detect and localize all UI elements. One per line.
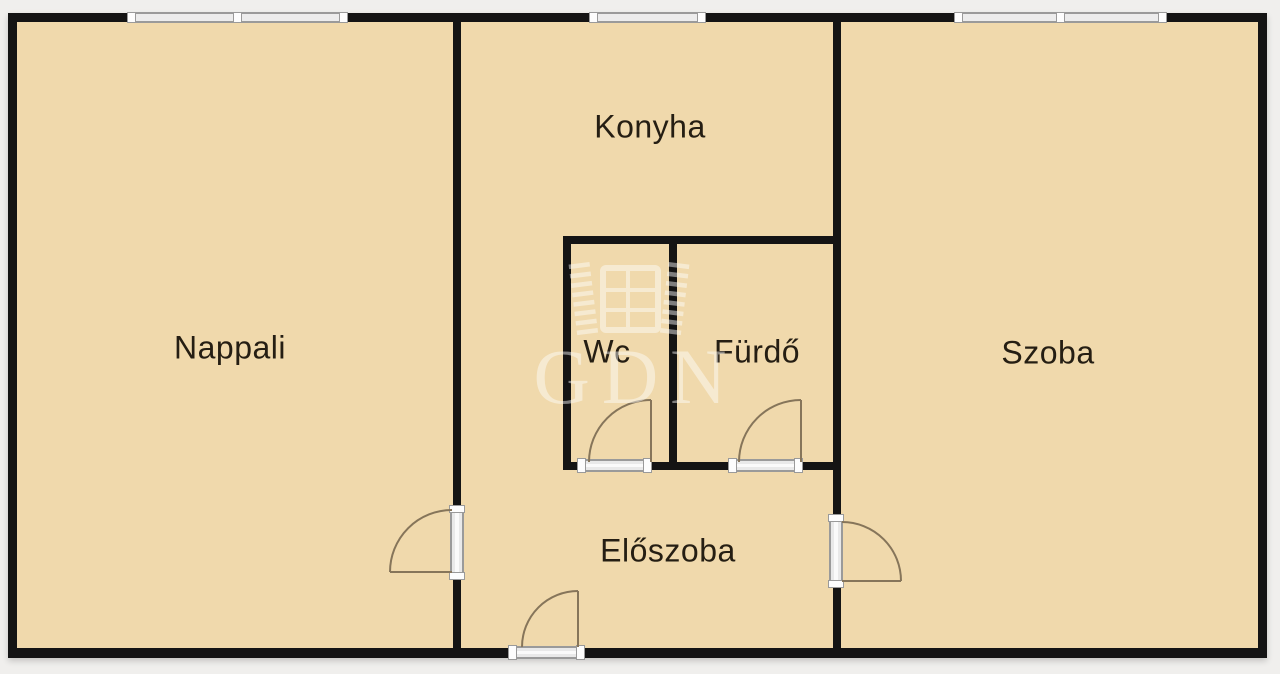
szoba-window-icon: [955, 12, 1166, 23]
door-jamb: [508, 645, 517, 660]
room-label-konyha: Konyha: [594, 109, 706, 146]
door-jamb: [449, 505, 465, 513]
wall-wc-left: [563, 236, 571, 470]
window-mullion: [127, 12, 136, 23]
window-mullion: [339, 12, 348, 23]
szoba-door-opening: [829, 514, 843, 588]
door-jamb: [794, 458, 803, 473]
floor-plan: Nappali Konyha Wc Fürdő Szoba Előszoba: [0, 0, 1280, 674]
door-jamb: [576, 645, 585, 660]
entrance-door-opening: [508, 646, 585, 659]
wall-exterior-left: [8, 13, 17, 658]
furdo-door-opening: [728, 459, 803, 472]
door-jamb: [828, 514, 844, 522]
window-mullion: [697, 12, 706, 23]
window-mullion: [233, 12, 242, 23]
konyha-window-icon: [590, 12, 705, 23]
wall-wc-furdo-top: [563, 236, 841, 244]
door-jamb: [828, 580, 844, 588]
window-mullion: [1158, 12, 1167, 23]
door-jamb: [577, 458, 586, 473]
room-label-wc: Wc: [583, 334, 630, 371]
wc-door-opening: [577, 459, 652, 472]
nappali-window-icon: [128, 12, 347, 23]
wall-exterior-right: [1258, 13, 1267, 658]
room-label-furdo: Fürdő: [714, 334, 800, 371]
room-label-nappali: Nappali: [174, 330, 286, 367]
window-mullion: [954, 12, 963, 23]
room-label-szoba: Szoba: [1001, 335, 1094, 372]
door-jamb: [449, 572, 465, 580]
nappali-door-opening: [450, 505, 464, 580]
wall-wc-furdo-divider: [669, 236, 677, 470]
door-jamb: [728, 458, 737, 473]
door-jamb: [643, 458, 652, 473]
window-mullion: [589, 12, 598, 23]
wall-exterior-bottom: [8, 648, 1267, 658]
room-label-eloszoba: Előszoba: [600, 533, 736, 570]
window-mullion: [1056, 12, 1065, 23]
